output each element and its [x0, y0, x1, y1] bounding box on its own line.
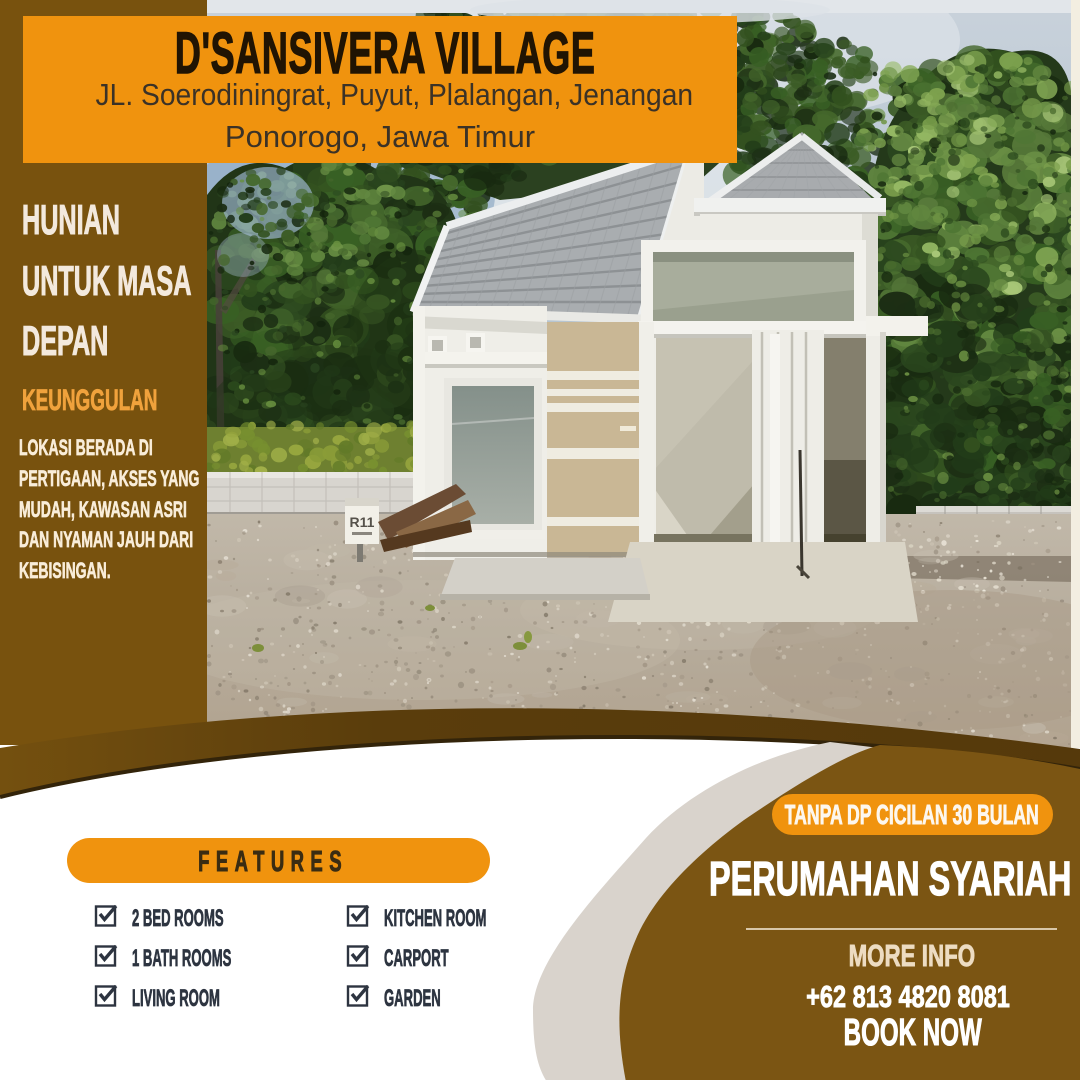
svg-text:R11: R11	[350, 514, 375, 530]
